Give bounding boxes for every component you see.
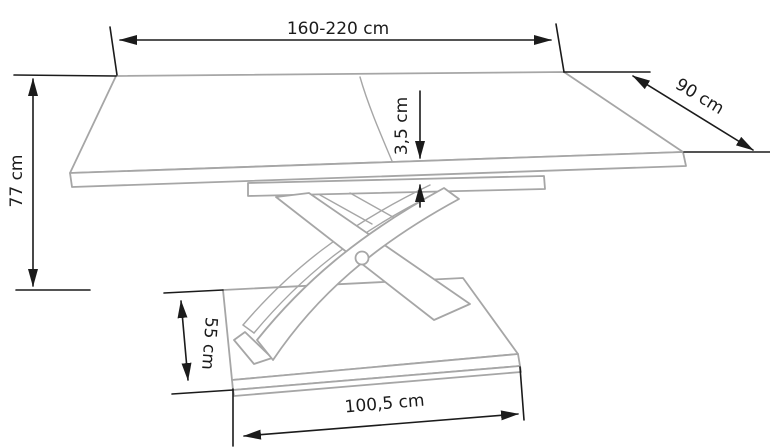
dimension-depth-label: 90 cm [672,75,728,119]
dimension-length-extension-left [110,27,117,75]
rear-straight-leg-line-2 [350,193,400,221]
table-drawing [70,72,686,396]
dimension-base-depth-arrow [181,301,188,380]
diagram-svg: 160-220 cm 90 cm 77 cm 3,5 cm 55 cm [0,0,770,447]
dimension-base-length-label: 100,5 cm [344,391,425,418]
dimension-base-length-extension-right [520,367,524,420]
dimension-base-length-arrow [244,414,518,436]
tabletop [70,72,686,187]
dimension-base-depth: 55 cm [164,290,233,394]
dimension-length: 160-220 cm [110,19,564,75]
dimension-length-extension-right [556,24,564,72]
dimension-base-depth-extension-top [164,290,223,293]
dimension-base-depth-label: 55 cm [197,316,221,370]
dimension-height-extension-top [14,75,116,76]
dimension-diagram: 160-220 cm 90 cm 77 cm 3,5 cm 55 cm [0,0,770,447]
dimension-top-thickness-label: 3,5 cm [392,97,412,155]
dimension-height-label: 77 cm [7,155,27,208]
dimension-length-label: 160-220 cm [287,19,389,39]
pivot-bolt-icon [356,252,369,265]
dimension-base-depth-extension-bottom [172,390,233,394]
